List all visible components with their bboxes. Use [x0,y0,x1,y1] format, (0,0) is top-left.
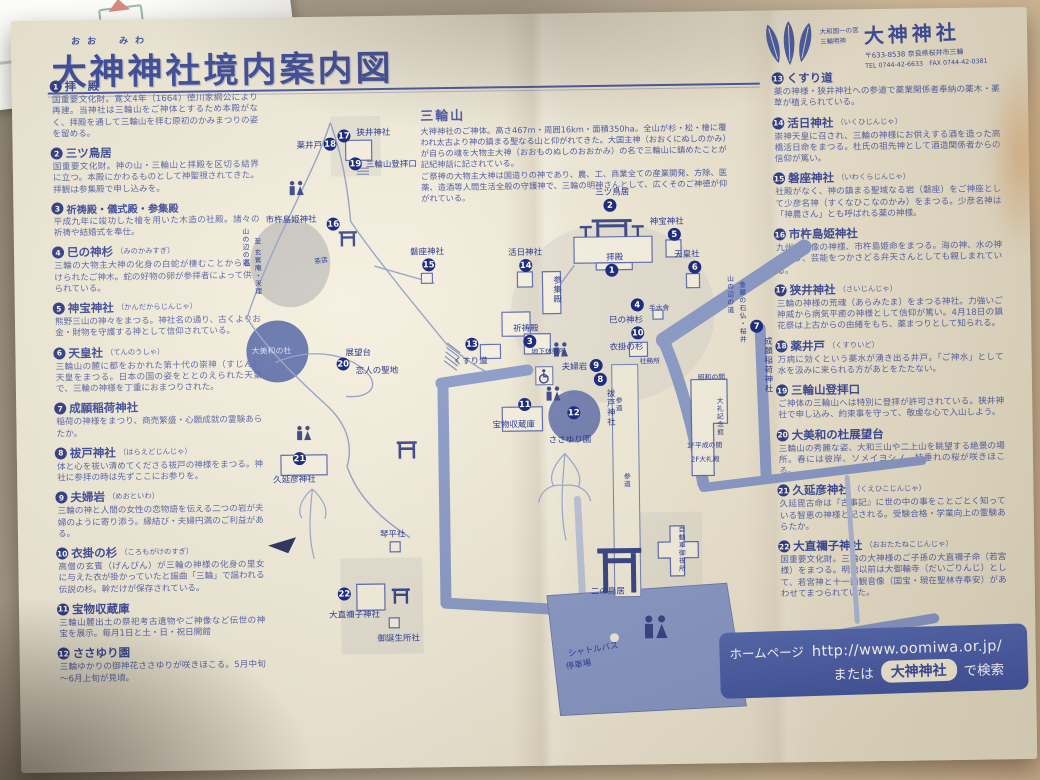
search-suffix: で検索 [963,658,1004,679]
map-marker-label: 拝殿 [606,251,623,263]
map-marker-badge: 7 [750,320,763,333]
map-label: 山の辺の道 [240,228,251,267]
map-marker-badge: 12 [567,406,580,419]
search-term-box: 大神神社 [880,659,957,683]
map-marker-label: 三輪山登拝口 [366,157,417,170]
miwa-mountain-note: 三輪山 大神神社のご神体。高さ467m・周囲16km・面積350ha。全山が杉・… [420,101,727,204]
homepage-banner: ホームページ http://www.oomiwa.or.jp/ または 大神神社… [719,623,1029,699]
map-marker-badge: 16 [327,218,340,231]
map-marker-label: 神宝神社 [650,215,684,227]
map-label: 恋人の聖地 [356,364,399,377]
map-label: 金屋の石仏・桜井 [736,281,747,344]
map-marker-label: 狭井神社 [356,126,390,138]
or-label: または [833,662,874,683]
map-label: 大礼記念館 [714,397,725,436]
note-body: 大神神社のご神体。高さ467m・周囲16km・面積350ha。全山が杉・松・檜に… [420,122,727,204]
map-marker-label: 巳の神杉 [609,313,643,325]
map-marker-label: 夫婦岩 [562,360,588,372]
map-label: 二の鳥居 [591,585,625,597]
map-marker-badge: 14 [519,259,532,272]
photo-of-shrine-guide-map: おお みわ 大神神社境内案内図 [0,0,1040,780]
map-label: 手水舎 [649,302,670,312]
map-label: 大美和の杜 [251,345,291,357]
map-marker-badge: 10 [631,326,644,339]
homepage-url: http://www.oomiwa.or.jp/ [812,638,1003,660]
map-marker-badge: 13 [465,338,478,351]
map-marker-label: 宝物収蔵庫 [492,418,535,431]
map-marker-badge: 15 [422,258,435,271]
map-marker-label: 三ツ鳥居 [595,186,629,198]
map-label: 1F平成の間 [687,439,723,449]
map-label: 自動車御祓所 [676,526,687,573]
map-label: 参道 [621,473,631,489]
map-marker-label: 大直禰子神社 [329,608,380,621]
homepage-label: ホームページ [729,641,804,662]
wheelchair-icon [536,367,553,385]
map-marker-label: 久延彦神社 [273,473,316,486]
torii-icon [397,443,417,459]
map-label: 2F大礼殿 [691,453,720,463]
map-label: 山の辺の道 [724,275,735,314]
map-marker-badge: 9 [590,359,603,372]
map-marker-badge: 17 [337,129,350,142]
map-marker-badge: 22 [338,587,351,600]
map-label: 参集殿 [550,275,562,304]
map-label: 至 玄賓庵・天理 [252,238,263,296]
map-label: 昭和の間 [698,371,725,381]
map-marker-badge: 21 [293,452,306,465]
map-label: 御誕生所社 [377,631,420,644]
map-marker-label: 薬井戸 [296,139,322,151]
map-marker-label: 活日神社 [508,246,542,258]
table-highlight-blur [986,55,1040,255]
map-marker-badge: 19 [349,157,362,170]
map-marker-label: 成願稲荷神社 [761,337,774,394]
map-marker-label: くすり道 [454,355,488,367]
map-marker-badge: 2 [603,199,616,212]
map-marker-badge: 6 [688,261,701,274]
torii-icon [339,232,357,246]
map-marker-label: 祈祷殿 [513,322,539,334]
map-marker-label: 衣掛の杉 [609,340,643,352]
map-label: 参道 [613,397,623,413]
compass-arrow [268,537,296,553]
map-marker-label: 天皇社 [674,248,700,260]
map-label: 琴平社 [380,528,406,540]
note-title: 三輪山 [420,101,726,124]
map-marker-badge: 8 [594,373,607,386]
map-marker-label: 磐座神社 [410,245,444,257]
map-marker-badge: 1 [605,264,618,277]
map-marker-label: 市杵島姫神社 [266,213,317,226]
shrine-map-pamphlet: おお みわ 大神神社境内案内図 [11,7,1037,773]
map-label: 地下休憩所 [531,345,565,355]
map-marker-label: ささゆり園 [549,433,592,446]
map-label: 社務所 [640,355,661,365]
map-marker-badge: 4 [631,298,644,311]
map-marker-badge: 11 [518,398,531,411]
map-marker-badge: 18 [323,138,336,151]
map-marker-label: 展望台 [345,346,371,358]
map-marker-badge: 5 [668,228,681,241]
map-marker-badge: 20 [337,357,350,370]
